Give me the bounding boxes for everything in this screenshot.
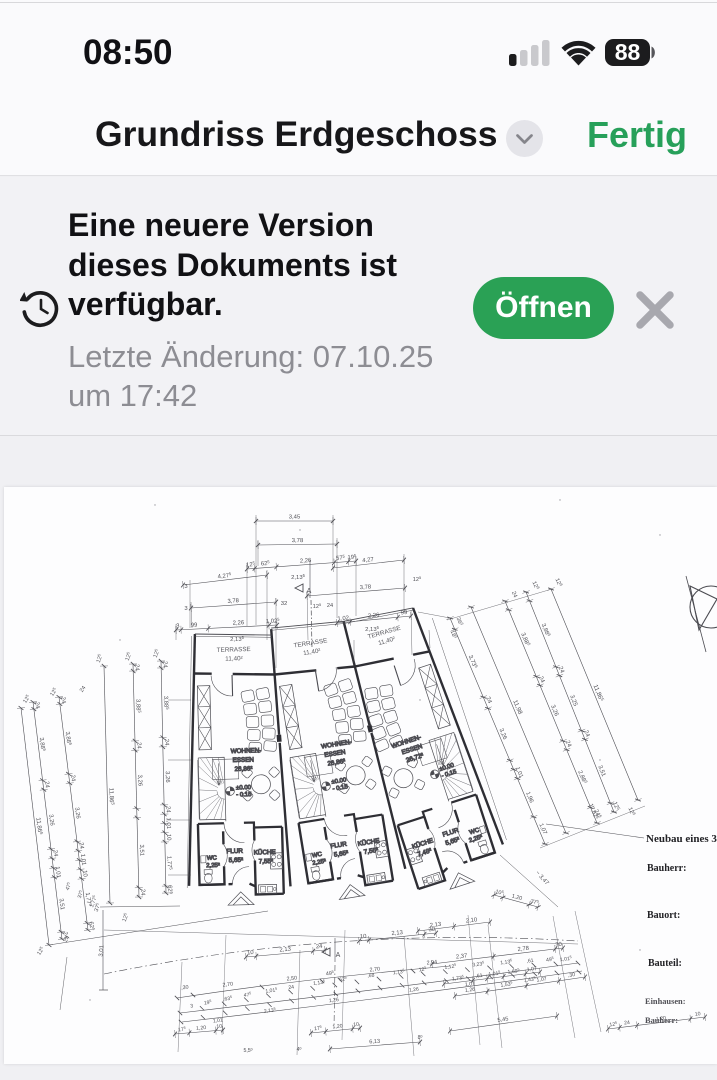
svg-text:125: 125 [531,580,541,591]
svg-text:475: 475 [64,882,73,892]
svg-text:1,26: 1,26 [409,987,420,994]
svg-text:88: 88 [615,39,641,65]
svg-text:125: 125 [554,577,564,588]
svg-text:495: 495 [325,970,334,978]
svg-text:625: 625 [166,885,174,895]
svg-text:125: 125 [151,648,161,659]
svg-text:125: 125 [120,912,130,923]
svg-text:1,26: 1,26 [329,997,340,1004]
svg-text:24: 24 [33,702,40,710]
svg-text:1,20: 1,20 [332,1023,343,1030]
svg-text:8º: 8º [418,1035,423,1041]
svg-text:575: 575 [336,554,346,562]
svg-text:365: 365 [455,616,465,627]
svg-text:10: 10 [353,1022,359,1029]
svg-text:30: 30 [555,942,563,949]
svg-text:TERRASSE: TERRASSE [293,637,328,649]
svg-text:24: 24 [59,696,66,704]
svg-text:3,78: 3,78 [292,538,304,544]
svg-text:3,885: 3,885 [38,737,48,752]
svg-text:FLUR: FLUR [330,841,348,851]
svg-text:2,135: 2,135 [263,1007,276,1015]
svg-text:1,01: 1,01 [165,817,171,829]
svg-text:24: 24 [484,696,492,705]
svg-text:A: A [307,588,312,595]
svg-text:24: 24 [624,1020,631,1027]
svg-text:175: 175 [314,1025,322,1033]
svg-text:3,78: 3,78 [227,598,240,605]
svg-text:1,775: 1,775 [166,856,174,871]
svg-text:2,94: 2,94 [426,960,437,967]
svg-text:24: 24 [52,850,59,858]
svg-text:2,135: 2,135 [291,573,305,581]
svg-text:KÜCHE: KÜCHE [411,836,434,850]
svg-text:2,50: 2,50 [286,975,297,982]
svg-text:2,13: 2,13 [279,947,292,954]
svg-text:WC: WC [312,852,323,860]
svg-text:24: 24 [165,806,171,813]
svg-text:10: 10 [216,1024,222,1030]
svg-text:24: 24 [139,889,145,896]
svg-text:2,135: 2,135 [230,635,244,643]
svg-text:24: 24 [537,675,545,684]
svg-text:2,26: 2,26 [233,620,245,627]
svg-text:2,25²: 2,25² [312,859,326,867]
svg-text:195: 195 [204,999,212,1007]
svg-text:11,865: 11,865 [107,788,115,806]
svg-text:Neubau eines 3-F: Neubau eines 3-F [646,833,717,845]
svg-text:4,275: 4,275 [217,571,232,580]
svg-text:3,45: 3,45 [289,515,301,521]
svg-text:3: 3 [184,584,188,590]
svg-text:1,135: 1,135 [392,968,405,976]
svg-text:3,78: 3,78 [360,584,373,591]
svg-text:32: 32 [281,601,288,607]
svg-text:5,5º: 5,5º [243,1048,252,1054]
svg-text:10: 10 [165,834,171,841]
svg-text:125: 125 [123,651,133,662]
svg-text:±0.00: ±0.00 [236,785,252,791]
svg-text:24: 24 [288,984,295,991]
svg-text:WC: WC [207,855,218,861]
svg-text:,61: ,61 [526,958,534,965]
svg-text:125: 125 [609,1021,618,1029]
svg-text:3,51: 3,51 [138,844,144,856]
svg-text:125: 125 [21,693,32,704]
svg-text:125: 125 [313,602,321,610]
svg-text:24: 24 [69,775,76,783]
svg-text:11,40²: 11,40² [303,648,321,658]
svg-text:5,65²: 5,65² [229,857,244,864]
svg-text:10: 10 [81,870,88,878]
svg-text:3,51: 3,51 [58,898,65,910]
svg-text:125: 125 [611,800,622,812]
svg-text:10: 10 [360,934,368,941]
svg-text:1,01: 1,01 [54,866,61,878]
svg-text:2,26: 2,26 [368,613,381,620]
svg-text:Bauherr:: Bauherr: [645,1016,678,1025]
svg-text:24: 24 [582,730,590,739]
svg-text:10: 10 [247,950,255,957]
svg-text:3,885: 3,885 [64,731,74,746]
svg-text:5,65²: 5,65² [445,836,461,847]
svg-text:24: 24 [163,739,169,746]
svg-text:125: 125 [413,575,421,583]
svg-text:24: 24 [79,685,87,694]
svg-text:2,13: 2,13 [391,930,404,937]
svg-text:,30: ,30 [181,985,189,992]
svg-text:3: 3 [176,623,180,629]
svg-text:24: 24 [316,944,324,951]
svg-text:24: 24 [557,666,565,675]
svg-text:125: 125 [418,966,426,974]
svg-text:7,55²: 7,55² [259,858,274,865]
svg-text:24: 24 [564,740,572,749]
svg-text:475: 475 [243,991,251,999]
svg-text:Bauteil:: Bauteil: [648,958,682,969]
svg-text:1,20: 1,20 [511,893,523,902]
svg-text:ESSEN: ESSEN [233,756,255,764]
svg-text:Bauherr:: Bauherr: [647,863,686,874]
svg-text:625: 625 [339,976,347,984]
svg-text:24: 24 [135,742,141,749]
svg-text:2,26: 2,26 [300,558,313,565]
svg-text:Bauort:: Bauort: [647,910,680,921]
svg-text:,635: ,635 [223,995,233,1003]
svg-text:24: 24 [133,664,139,671]
svg-text:1,435: 1,435 [523,976,536,984]
svg-text:1,01: 1,01 [79,854,86,866]
svg-text:10: 10 [695,1011,702,1018]
svg-text:3,26: 3,26 [136,775,142,787]
svg-text:3,26: 3,26 [164,771,170,783]
svg-text:625: 625 [261,559,271,567]
svg-text:24: 24 [327,603,333,609]
svg-text:5,65²: 5,65² [333,850,348,859]
svg-text:125: 125 [94,653,104,664]
svg-text:1,135: 1,135 [313,979,326,987]
svg-text:1,015: 1,015 [265,987,278,995]
svg-text:1,07: 1,07 [465,981,476,988]
svg-text:1,015: 1,015 [560,955,573,963]
svg-text:WOHNEN-: WOHNEN- [231,747,262,755]
svg-text:495: 495 [546,956,554,964]
svg-text:TERRASSE: TERRASSE [217,646,251,654]
svg-text:2,25²: 2,25² [206,863,220,869]
svg-text:2,37: 2,37 [456,953,468,960]
svg-text:24: 24 [43,781,50,789]
svg-text:11,40²: 11,40² [225,655,243,662]
svg-text:7,48²: 7,48² [417,847,433,858]
svg-text:3: 3 [184,606,188,612]
svg-text:3: 3 [190,1003,194,1009]
svg-text:A: A [336,952,341,959]
svg-text:1,20: 1,20 [196,1025,207,1032]
svg-text:~ 3,47: ~ 3,47 [534,870,550,886]
svg-text:6,13: 6,13 [369,1039,380,1046]
svg-text:24: 24 [78,842,85,850]
svg-text:4,27: 4,27 [362,557,374,564]
svg-text:24: 24 [510,591,518,599]
svg-text:3,235: 3,235 [472,960,485,968]
svg-text:1,125: 1,125 [444,963,457,971]
svg-text:24: 24 [161,661,167,668]
svg-text:WOHNEN-: WOHNEN- [321,739,353,751]
svg-text:1,02: 1,02 [337,615,349,622]
svg-text:3,885: 3,885 [134,699,142,714]
svg-text:125: 125 [35,945,46,956]
svg-text:3,01: 3,01 [99,945,106,957]
svg-text:FLUR: FLUR [226,848,243,855]
svg-text:,68: ,68 [367,973,375,980]
svg-text:Einhausen:: Einhausen: [645,997,686,1006]
svg-text:3,885: 3,885 [162,696,170,711]
